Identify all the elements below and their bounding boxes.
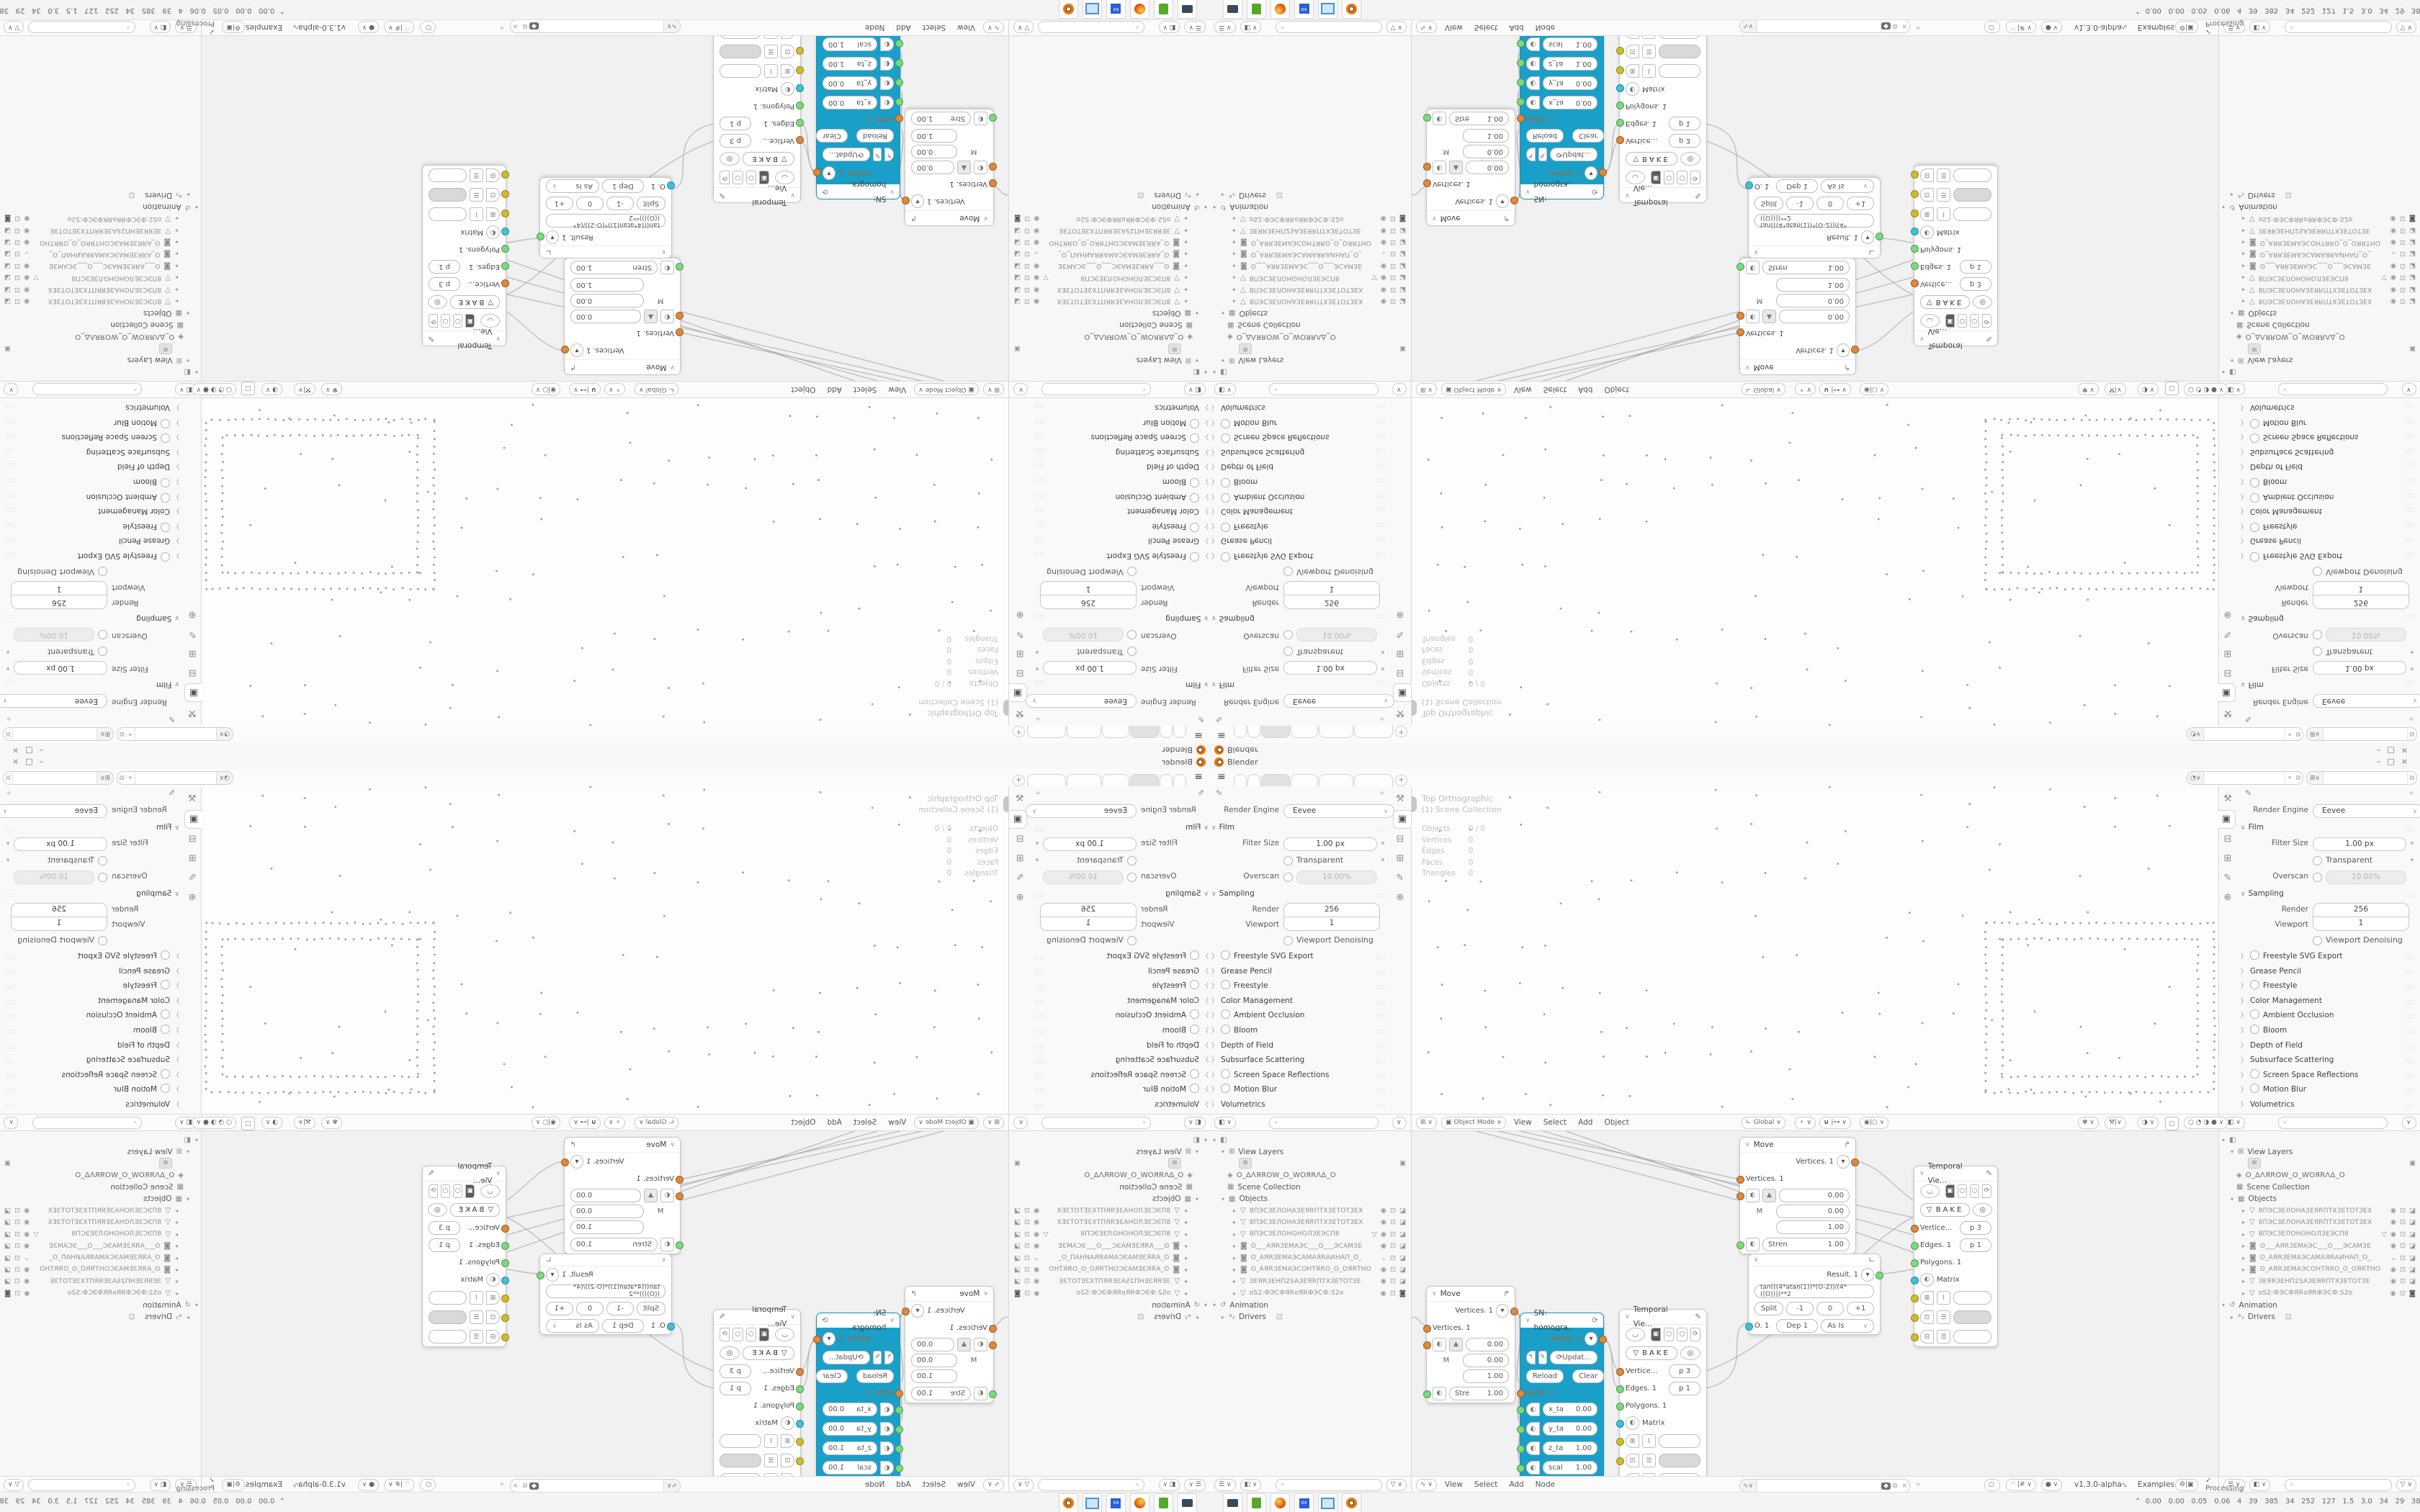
- render-icon[interactable]: ▣: [2409, 1159, 2416, 1167]
- count-pill[interactable]: p 3: [720, 1364, 751, 1378]
- count-pill[interactable]: p 1: [1669, 117, 1700, 131]
- node-header-icon[interactable]: ↱: [910, 211, 917, 225]
- diamond-icon[interactable]: ◐: [880, 76, 894, 90]
- view-layer-field[interactable]: [2323, 772, 2407, 784]
- socket-yellow-icon[interactable]: [501, 171, 509, 179]
- camera-icon[interactable]: ◪: [1014, 1277, 1021, 1285]
- mode-dropdown[interactable]: ▣ Object Mode ∨: [914, 384, 979, 396]
- section-screen-space-reflections[interactable]: 〉Screen Space Reflections∷∷: [2241, 430, 2418, 445]
- object-row[interactable]: ▸ ◙О_АЯRЗЕМАЭСАМАЯRАИНАП_О_⌄ ⊡ ◪: [1, 248, 198, 260]
- camera-icon[interactable]: ◙: [4, 1290, 11, 1297]
- copy-icon[interactable]: ⧉: [521, 1482, 529, 1490]
- object-row[interactable]: ▸ ◙О___АЯRЗЕМАЭС___О___ЭСАМЗЕ◉ ⊡ ◪: [2222, 1241, 2419, 1252]
- curve-icon[interactable]: ↰: [1526, 148, 1536, 162]
- options-icon[interactable]: ∨: [1392, 384, 1407, 396]
- menu-view[interactable]: View: [957, 23, 975, 32]
- donut-icon[interactable]: ◎: [1973, 1203, 1992, 1217]
- window-titlebar[interactable]: Blender –□×: [0, 743, 1210, 756]
- display-mode-icon[interactable]: ☰ ∨: [1214, 1479, 1236, 1491]
- section-freestyle[interactable]: 〉Freestyle∷∷: [2241, 978, 2418, 994]
- temporal-viewer-node[interactable]: ∨Temporal Vie...✎◡ ▣○○⟳▽BAKE◎Vertice...p…: [713, 22, 801, 203]
- attribute-field[interactable]: [429, 1310, 467, 1324]
- socket-orange-icon[interactable]: [796, 136, 804, 144]
- animate-dot-icon[interactable]: [6, 858, 9, 861]
- socket-green-icon[interactable]: [1616, 102, 1624, 109]
- menu-view[interactable]: View: [1445, 1480, 1463, 1489]
- eye-icon[interactable]: ◉: [1034, 1218, 1039, 1226]
- search-input[interactable]: ⌕: [32, 384, 142, 396]
- orientation-dropdown[interactable]: ∟ Global ∨: [1742, 384, 1785, 396]
- section-grease-pencil[interactable]: 〉Grease Pencil∷∷: [2241, 534, 2418, 549]
- socket-yellow-icon[interactable]: [796, 47, 804, 55]
- list-icon[interactable]: ☰: [1642, 45, 1656, 58]
- socket-green-icon[interactable]: [676, 1241, 684, 1249]
- view-layer-icon[interactable]: ⊞: [1168, 1158, 1181, 1169]
- screen-icon[interactable]: ⊡: [1024, 1266, 1030, 1274]
- screen-icon[interactable]: ⊡: [14, 238, 20, 246]
- options-icon[interactable]: ∨: [2402, 384, 2416, 396]
- screen-icon[interactable]: ⊡: [1024, 1230, 1030, 1238]
- pin-icon[interactable]: ⌖: [1916, 1480, 1920, 1490]
- socket-orange-icon[interactable]: [501, 1225, 509, 1233]
- samples-render-field[interactable]: 256: [2313, 903, 2409, 917]
- section-screen-space-reflections[interactable]: 〉Screen Space Reflections∷∷: [2241, 1068, 2418, 1083]
- socket-yellow-icon[interactable]: [501, 1295, 509, 1302]
- filter-size-field[interactable]: 1.00 px: [1043, 837, 1137, 851]
- root-row[interactable]: ▾◧: [1, 1134, 198, 1146]
- temporal-viewer-node[interactable]: ∨Temporal Vie...✎◡ ▣○○⟳▽BAKE◎Vertice...p…: [422, 1166, 506, 1347]
- button-split[interactable]: Split: [637, 1302, 665, 1315]
- screen-icon[interactable]: ⊡: [14, 1266, 20, 1274]
- world-row[interactable]: ◈O_ΔΛЯROW_O_WОЯRΛΔ_O: [1, 1169, 198, 1181]
- menu-object[interactable]: Object: [1604, 385, 1628, 394]
- overscan-field[interactable]: 10.00%: [1296, 870, 1377, 884]
- shading-icons[interactable]: ○ ◔ ◑ ● ∨: [192, 384, 236, 396]
- render-icon[interactable]: ▣: [1399, 1159, 1406, 1167]
- screen-icon[interactable]: ⊡: [2400, 286, 2406, 294]
- eye-icon[interactable]: ◉: [1034, 1242, 1039, 1250]
- mode-dropdown[interactable]: As Is∨: [546, 1319, 599, 1333]
- diamond-icon[interactable]: ◐: [1746, 1238, 1760, 1251]
- filter-icon[interactable]: ▽ ∨: [2396, 1479, 2416, 1491]
- socket-orange-icon[interactable]: [1616, 1368, 1624, 1376]
- node-title[interactable]: ∨SN: homogra..⟳: [817, 1313, 900, 1328]
- menu-select[interactable]: Select: [1474, 23, 1497, 32]
- screen-icon[interactable]: ⊡: [1024, 227, 1030, 235]
- scene-collection-row[interactable]: ▦Scene Collection: [1, 319, 198, 330]
- socket-cyan-icon[interactable]: [1745, 1323, 1753, 1331]
- grid-icon[interactable]: ⊞: [486, 207, 500, 221]
- animation-row[interactable]: ▾↺Animation: [1, 201, 198, 212]
- socket-green-icon[interactable]: [1911, 245, 1919, 253]
- section-checkbox[interactable]: [1221, 950, 1230, 960]
- animation-row[interactable]: ▾↺Animation: [1213, 201, 1410, 212]
- donut-icon[interactable]: ◎: [1973, 296, 1992, 310]
- window-titlebar[interactable]: Blender –□×: [1210, 743, 2420, 756]
- node-options-icon[interactable]: ● ∨: [358, 22, 379, 34]
- donut-icon[interactable]: ◎: [1680, 1346, 1700, 1360]
- section-ambient-occlusion[interactable]: 〉Ambient Occlusion∷∷: [1031, 489, 1209, 504]
- world-row[interactable]: ◈O_ΔΛЯROW_O_WОЯRΛΔ_O: [1213, 330, 1410, 342]
- socket-yellow-icon[interactable]: [1911, 1295, 1919, 1302]
- scene-collection-row[interactable]: ▦Scene Collection: [2222, 319, 2419, 330]
- section-volumetrics[interactable]: 〉Volumetrics∷∷: [1031, 1097, 1209, 1112]
- scene-icon[interactable]: ✎: [184, 625, 201, 642]
- samples-render-field[interactable]: 256: [11, 595, 107, 609]
- socket-cyan-icon[interactable]: [796, 84, 804, 92]
- section-checkbox[interactable]: [2250, 493, 2259, 503]
- section-checkbox[interactable]: [161, 552, 170, 562]
- window-titlebar[interactable]: Blender –□×: [1210, 756, 2420, 769]
- value-field[interactable]: z_ta1.00: [1543, 57, 1597, 71]
- search-input[interactable]: ⌕: [1269, 1117, 1379, 1129]
- pin-icon[interactable]: ⌖: [500, 1480, 504, 1490]
- object-row[interactable]: ▸ ▽8ПЭСЗЕЛОНАЗЕЯRПТХЗЕТОТЗЕХ◉ ⊡ ◪: [2222, 295, 2419, 307]
- sphere-icon[interactable]: ◐: [781, 83, 794, 96]
- eye-icon[interactable]: ⌄: [24, 1254, 30, 1262]
- pin-icon[interactable]: ⌖: [1036, 714, 1040, 724]
- circle-icon[interactable]: ○: [1664, 1328, 1674, 1341]
- editor-icon[interactable]: ✎: [2245, 788, 2251, 798]
- overlays-icon[interactable]: ⚒|∨: [294, 384, 315, 396]
- section-freestyle[interactable]: 〉Freestyle∷∷: [1031, 518, 1209, 534]
- pin-icon[interactable]: ⌖: [500, 22, 504, 32]
- reload-button[interactable]: Reload: [856, 130, 894, 143]
- render-icon[interactable]: ▣: [1014, 1159, 1021, 1167]
- scene-icon[interactable]: ✎: [1391, 870, 1409, 887]
- section-subsurface-scattering[interactable]: 〉Subsurface Scattering∷∷: [1211, 1053, 1389, 1068]
- installer-64-icon[interactable]: 64: [1106, 1493, 1126, 1512]
- diamond-icon[interactable]: ◐: [1526, 37, 1540, 51]
- value-field[interactable]: x_ta0.00: [1543, 1403, 1597, 1416]
- eye-icon[interactable]: ◉: [1034, 1207, 1039, 1215]
- tool-icon[interactable]: ⚒: [2219, 704, 2236, 721]
- render-icon[interactable]: ▣: [184, 683, 202, 702]
- output-icon[interactable]: ⊟: [1391, 831, 1409, 848]
- section-checkbox[interactable]: [1221, 419, 1230, 428]
- update-button[interactable]: ⟳ Updat...: [823, 1351, 870, 1364]
- section-depth-of-field[interactable]: 〉Depth of Field∷∷: [1211, 459, 1389, 474]
- dep-pill[interactable]: Dep 1: [602, 1319, 644, 1333]
- up-icon[interactable]: ▲: [1762, 1189, 1776, 1202]
- list-icon[interactable]: ⌇: [1642, 1434, 1656, 1448]
- copy-icon[interactable]: ⧉: [2294, 731, 2303, 738]
- snap-icon[interactable]: ∪|⊶ ∨: [569, 384, 601, 396]
- camera-icon[interactable]: ◪: [2409, 297, 2416, 305]
- node-title[interactable]: ∨∟: [1749, 1254, 1880, 1266]
- output-icon[interactable]: ⊟: [1391, 664, 1409, 681]
- socket-cyan-icon[interactable]: [667, 181, 675, 189]
- node-header-icon[interactable]: ✎: [1986, 1166, 1992, 1181]
- socket-green-icon[interactable]: [1517, 1426, 1525, 1434]
- workspace-tab-5[interactable]: [1319, 726, 1353, 738]
- section-motion-blur[interactable]: 〉Motion Blur∷∷: [1031, 415, 1209, 430]
- virtualbox-icon[interactable]: [1247, 0, 1266, 19]
- socket-green-icon[interactable]: [796, 119, 804, 127]
- grid-icon[interactable]: ⊡: [486, 188, 500, 202]
- circle-icon[interactable]: ○: [441, 1184, 450, 1198]
- add-workspace-button[interactable]: +: [1395, 726, 1407, 737]
- viewport-denoising-checkbox[interactable]: [1283, 567, 1293, 576]
- overscan-checkbox[interactable]: [1283, 630, 1293, 639]
- screen-icon[interactable]: ⊡: [2400, 238, 2406, 246]
- socket-green-icon[interactable]: [1517, 1464, 1525, 1472]
- eye-icon[interactable]: ◉: [2390, 215, 2396, 222]
- socket-green-icon[interactable]: [1616, 119, 1624, 127]
- value-field[interactable]: x_ta0.00: [823, 1403, 877, 1416]
- options-icon[interactable]: ∨: [4, 1117, 18, 1129]
- dropdown-icon[interactable]: ▾: [1861, 1268, 1874, 1282]
- sphere-icon[interactable]: ◐: [486, 1273, 500, 1287]
- socket-orange-icon[interactable]: [989, 179, 997, 187]
- camera-icon[interactable]: ◙: [2409, 215, 2416, 222]
- temporal-viewer-node[interactable]: ∨Temporal Vie...✎◡ ▣○○⟳▽BAKE◎Vertice...p…: [422, 165, 506, 346]
- eye-icon[interactable]: ⌄: [2390, 250, 2396, 258]
- attribute-field[interactable]: [1953, 207, 1991, 221]
- temporal-viewer-node[interactable]: ∨Temporal Vie...✎◡ ▣○○⟳▽BAKE◎Vertice...p…: [1619, 1309, 1707, 1490]
- circle-icon[interactable]: ○: [441, 315, 450, 328]
- move-node[interactable]: ∨Move↱Vertices. 1▾Vertices. 1◐▲0.00M0.00…: [1739, 1137, 1856, 1254]
- camera-icon[interactable]: ◪: [1399, 1207, 1406, 1215]
- refresh-icon[interactable]: ⟳: [1982, 1184, 1991, 1198]
- clear-button[interactable]: Clear: [1572, 130, 1604, 143]
- eye-icon[interactable]: ⌄: [2390, 1254, 2396, 1262]
- socket-green-icon[interactable]: [1616, 1385, 1624, 1393]
- socket-yellow-icon[interactable]: [1616, 1457, 1624, 1465]
- button-split[interactable]: Split: [1754, 197, 1783, 211]
- eye-icon[interactable]: ◉: [1034, 1277, 1039, 1285]
- menu-icon[interactable]: ≡: [1194, 771, 1203, 783]
- animate-dot-icon[interactable]: [1036, 858, 1039, 861]
- button-split[interactable]: Split: [637, 197, 665, 211]
- camera-icon[interactable]: ◪: [1399, 1230, 1406, 1238]
- section-checkbox[interactable]: [161, 493, 170, 503]
- tool-icon[interactable]: ⚒: [1391, 704, 1409, 721]
- button-plus[interactable]: +1: [546, 197, 573, 211]
- eye-icon[interactable]: ◉: [24, 1207, 30, 1215]
- attribute-field[interactable]: [720, 1434, 761, 1448]
- node-header-icon[interactable]: ✎: [1695, 1310, 1701, 1324]
- menu-select[interactable]: Select: [853, 385, 877, 394]
- grid-icon[interactable]: ⊟: [486, 1330, 500, 1344]
- up-icon[interactable]: ▲: [1449, 161, 1463, 175]
- diamond-icon[interactable]: ◐: [974, 1338, 987, 1351]
- section-depth-of-field[interactable]: 〉Depth of Field∷∷: [1031, 1038, 1209, 1053]
- diamond-icon[interactable]: ◐: [1433, 1338, 1446, 1351]
- output-icon[interactable]: ⊟: [2219, 831, 2236, 848]
- attribute-field[interactable]: [1953, 1330, 1991, 1344]
- button-zero[interactable]: 0: [576, 197, 604, 211]
- list-icon[interactable]: ☰: [1937, 1310, 1950, 1324]
- object-row[interactable]: ▸ ◙О_АЯRЗЕМАЭСОНТЯRО_О_ОЯRТНО◉ ⊡ ◪: [1213, 1264, 1410, 1275]
- eye-icon[interactable]: ◉: [1034, 1290, 1039, 1297]
- overscan-field[interactable]: 10.00%: [14, 870, 94, 884]
- cube-icon[interactable]: ▣: [465, 315, 475, 328]
- section-volumetrics[interactable]: 〉Volumetrics∷∷: [2, 1097, 179, 1112]
- firefox-icon[interactable]: [1130, 1493, 1149, 1512]
- eye-icon[interactable]: ◉: [2390, 1266, 2396, 1274]
- animate-dot-icon[interactable]: [1036, 651, 1039, 654]
- circle-icon[interactable]: ○: [1677, 171, 1687, 185]
- section-checkbox[interactable]: [161, 950, 170, 960]
- socket-orange-icon[interactable]: [1851, 346, 1859, 354]
- screen-icon[interactable]: ⊡: [1390, 215, 1396, 222]
- view-layer-selector[interactable]: ⊞∨ ⧉: [2306, 727, 2417, 741]
- transparent-checkbox[interactable]: [98, 647, 107, 656]
- socket-green-icon[interactable]: [796, 102, 804, 109]
- section-checkbox[interactable]: [1221, 552, 1230, 562]
- list-icon[interactable]: ☰: [470, 1330, 483, 1344]
- socket-green-icon[interactable]: [537, 233, 544, 240]
- list-icon[interactable]: ⌇: [1937, 1291, 1950, 1305]
- show-gizmo-icon[interactable]: ✾ ∨: [321, 1117, 342, 1129]
- eye-icon[interactable]: ◉: [2390, 238, 2396, 246]
- menu-view[interactable]: View: [957, 1480, 975, 1489]
- up-icon[interactable]: ▲: [1762, 310, 1776, 324]
- pin-icon[interactable]: ⌖: [1036, 788, 1040, 798]
- attribute-field[interactable]: [1953, 168, 1991, 182]
- dep-pill[interactable]: Dep 1: [1776, 1319, 1818, 1333]
- dropdown-icon[interactable]: ▾: [911, 195, 924, 209]
- pin-icon[interactable]: ⌖: [2409, 788, 2414, 798]
- eye-icon[interactable]: ◉: [1381, 1218, 1386, 1226]
- socket-orange-icon[interactable]: [1736, 1176, 1744, 1184]
- drivers-row[interactable]: ▸*₂Drivers⊡: [2222, 1311, 2419, 1323]
- node-title[interactable]: ∨Temporal Vie...✎: [423, 1166, 506, 1182]
- socket-green-icon[interactable]: [895, 1464, 903, 1472]
- socket-cyan-icon[interactable]: [1616, 84, 1624, 92]
- object-row[interactable]: ▸ ▽8ПЭСЗЕЛОНАЗЕЯRПТХЗЕТОТЗЕХ◉ ⊡ ◪: [1, 1217, 198, 1228]
- diamond-icon[interactable]: ◐: [974, 1387, 987, 1400]
- window-controls[interactable]: –□×: [6, 757, 43, 766]
- screen-icon[interactable]: ⊡: [1390, 1290, 1396, 1297]
- dropdown-icon[interactable]: ▾: [823, 1332, 835, 1346]
- smile-icon[interactable]: ◡: [775, 1328, 794, 1341]
- dropdown-icon[interactable]: ▾: [823, 167, 835, 181]
- grid-icon[interactable]: ⊞: [781, 64, 794, 78]
- socket-yellow-icon[interactable]: [1616, 1438, 1624, 1446]
- value-field[interactable]: x_ta0.00: [823, 96, 877, 109]
- modifier-icon[interactable]: ▽: [33, 274, 38, 282]
- window-controls[interactable]: –□×: [2377, 746, 2414, 755]
- socket-green-icon[interactable]: [1517, 40, 1525, 48]
- value-field[interactable]: 1.00: [911, 130, 957, 143]
- output-icon[interactable]: ⊟: [1011, 831, 1028, 848]
- close-icon[interactable]: ×: [1899, 23, 1909, 30]
- diamond-icon[interactable]: ◐: [1526, 96, 1540, 109]
- compile-shield-icon[interactable]: ◆: [1881, 1482, 1891, 1490]
- xray-icon[interactable]: ◑ ∨: [2138, 384, 2159, 396]
- bake-button[interactable]: ▽BAKE: [1626, 1346, 1677, 1360]
- object-row[interactable]: ▸ ▽ЗЕЯRЗЕНП2SАЗЕЯRПТХЗЕТОТЗЕ◉ ⊡ ◪: [1, 1276, 198, 1287]
- camera-icon[interactable]: ◪: [4, 262, 11, 270]
- value-field[interactable]: scal1.00: [1543, 1461, 1597, 1475]
- view-layer-child-row[interactable]: ⊞▣: [1, 1158, 198, 1169]
- installer-64-icon[interactable]: 64: [1294, 0, 1314, 19]
- render-engine-dropdown[interactable]: Eevee∨: [2313, 694, 2420, 708]
- object-row[interactable]: ▸ ▽8ПЭСЗЕЛОНАЗЕЯRПТХЗЕТОТЗЕХ◉ ⊡ ◪: [1010, 284, 1207, 295]
- animate-dot-icon[interactable]: [1381, 667, 1384, 670]
- brush-icon[interactable]: ✎: [1538, 148, 1548, 162]
- socket-orange-icon[interactable]: [1517, 114, 1525, 122]
- socket-cyan-icon[interactable]: [1911, 228, 1919, 235]
- value-field[interactable]: 0.00: [1466, 161, 1509, 175]
- dropdown-icon[interactable]: ▾: [1837, 1155, 1850, 1169]
- value-field[interactable]: 0.00: [1776, 1205, 1850, 1218]
- dropdown-icon[interactable]: ▾: [570, 344, 583, 358]
- root-row[interactable]: ▾◧: [1213, 366, 1410, 378]
- diamond-icon[interactable]: ◐: [880, 57, 894, 71]
- samples-viewport-field[interactable]: 1: [2313, 581, 2409, 595]
- object-row[interactable]: ▸ ◙О_АЯRЗЕМАЭСАМАЯRАИНАП_О_⌄ ⊡ ◪: [1213, 1252, 1410, 1264]
- node-title[interactable]: ∨∟: [540, 246, 671, 258]
- node-title[interactable]: ∨Temporal Vie...✎: [1620, 1310, 1706, 1325]
- search-input[interactable]: ⌕: [28, 1479, 135, 1491]
- list-icon[interactable]: ☰: [1937, 1330, 1950, 1344]
- strength-field[interactable]: Stre1.00: [911, 1387, 971, 1400]
- overscan-field[interactable]: 10.00%: [1296, 628, 1377, 642]
- node-title[interactable]: ∨SN: homogra..⟳: [1520, 1313, 1603, 1328]
- world-row[interactable]: ◈O_ΔΛЯROW_O_WОЯRΛΔ_O: [2222, 1169, 2419, 1181]
- count-pill[interactable]: p 1: [720, 117, 751, 131]
- object-row[interactable]: ▸ ▽ЗЕЯRЗЕНП2SАЗЕЯRПТХЗЕТОТЗЕ◉ ⊡ ◪: [1, 225, 198, 236]
- grid-icon[interactable]: ⊡: [1920, 188, 1934, 202]
- socket-orange-icon[interactable]: [895, 114, 903, 122]
- camera-icon[interactable]: ◪: [1014, 1207, 1021, 1215]
- pin-icon[interactable]: ⌖: [126, 731, 134, 738]
- smile-icon[interactable]: ◡: [1626, 171, 1645, 185]
- socket-yellow-icon[interactable]: [501, 1314, 509, 1322]
- sphere-icon[interactable]: ◐: [781, 1416, 794, 1430]
- editor-type-icon[interactable]: ◧ ∨: [150, 1479, 171, 1491]
- circle-button[interactable]: ○: [420, 1479, 436, 1491]
- node-header-icon[interactable]: ✎: [428, 1166, 434, 1181]
- camera-icon[interactable]: ◪: [1399, 1242, 1406, 1250]
- eye-icon[interactable]: ◉: [2390, 1218, 2396, 1226]
- workspace-tab-6[interactable]: [1027, 774, 1066, 786]
- socket-orange-icon[interactable]: [1911, 279, 1919, 287]
- socket-green-icon[interactable]: [1517, 1406, 1525, 1414]
- diamond-icon[interactable]: ◐: [1526, 1461, 1540, 1475]
- system-monitor-icon[interactable]: [1178, 0, 1197, 19]
- section-checkbox[interactable]: [161, 1069, 170, 1079]
- objects-row[interactable]: ▾▦Objects: [1213, 307, 1410, 319]
- socket-green-icon[interactable]: [1736, 1241, 1744, 1249]
- screen-icon[interactable]: ⊡: [2400, 262, 2406, 270]
- overscan-checkbox[interactable]: [1127, 630, 1137, 639]
- animate-dot-icon[interactable]: [6, 651, 9, 654]
- camera-icon[interactable]: ◪: [4, 297, 11, 305]
- eye-icon[interactable]: ◉: [1381, 215, 1386, 222]
- eye-icon[interactable]: ◉: [1381, 227, 1386, 235]
- viewport-denoising-checkbox[interactable]: [1127, 567, 1137, 576]
- eye-icon[interactable]: ◉: [24, 1290, 30, 1297]
- move-node[interactable]: ∨Move↱Vertices. 1▾Vertices. 1◐▲0.00M0.00…: [1426, 1286, 1515, 1403]
- overscan-field[interactable]: 10.00%: [1043, 870, 1124, 884]
- section-color-management[interactable]: 〉Color Management∷∷: [1211, 994, 1389, 1009]
- socket-green-icon[interactable]: [796, 1403, 804, 1410]
- brush-icon[interactable]: ✎: [873, 1351, 882, 1364]
- screen-icon[interactable]: ⊡: [14, 286, 20, 294]
- root-row[interactable]: ▾◧: [1, 366, 198, 378]
- section-checkbox[interactable]: [1221, 1009, 1230, 1019]
- smile-icon[interactable]: ◡: [1920, 1184, 1940, 1198]
- section-motion-blur[interactable]: 〉Motion Blur∷∷: [1211, 415, 1389, 430]
- donut-icon[interactable]: ◎: [1680, 153, 1700, 166]
- editor-icon[interactable]: ✎: [169, 714, 175, 724]
- transparent-checkbox[interactable]: [1127, 647, 1137, 656]
- object-row[interactable]: ▸ ▽ЗЕЯRЗЕНП2SАЗЕЯRПТХЗЕТОТЗЕ◉ ⊡ ◪: [2222, 1276, 2419, 1287]
